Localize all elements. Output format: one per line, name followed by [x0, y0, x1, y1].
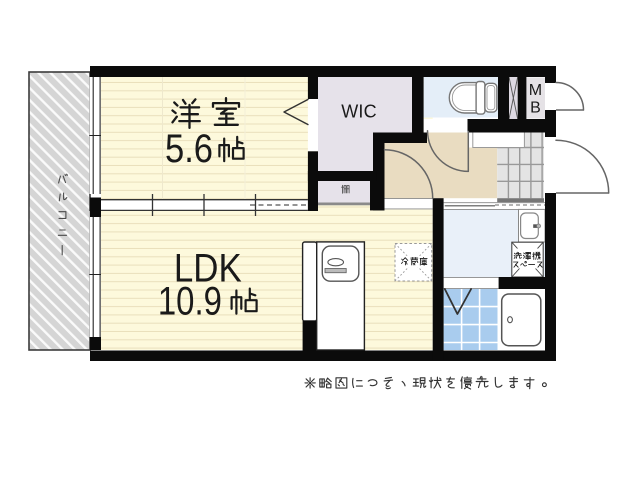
svg-text:10.9: 10.9 — [158, 280, 222, 324]
svg-text:M: M — [529, 82, 542, 99]
svg-text:WIC: WIC — [341, 102, 377, 122]
svg-text:5.6: 5.6 — [165, 127, 213, 171]
svg-text:B: B — [530, 100, 541, 117]
